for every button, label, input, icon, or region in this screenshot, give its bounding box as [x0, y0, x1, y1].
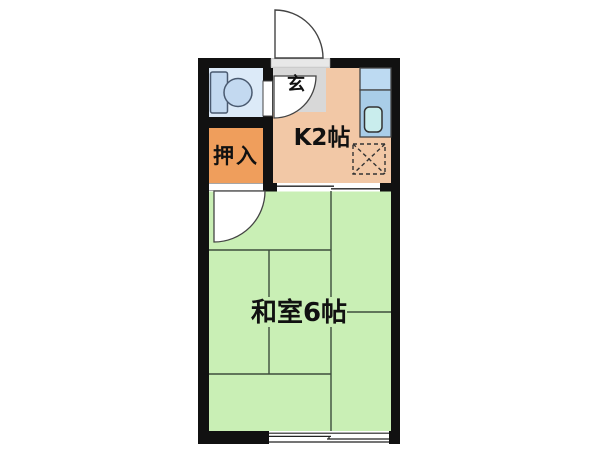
entrance-label: 玄 [287, 73, 305, 95]
wall-bottom-right [389, 431, 400, 444]
closet-label: 押入 [213, 144, 259, 168]
wall-left [198, 58, 209, 444]
kitchen-sink-icon [365, 107, 383, 132]
toilet-door-leaf [263, 81, 273, 116]
wall-stub-right [380, 183, 391, 192]
kitchen-label: K2帖 [294, 125, 351, 151]
floor-plan: 玄 K2帖 押入 和室6帖 [0, 0, 600, 450]
sliding-door [277, 183, 380, 192]
window [269, 432, 389, 443]
wall-bottom-left [198, 431, 269, 444]
toilet-bowl [224, 79, 252, 107]
main-room-label: 和室6帖 [251, 297, 347, 328]
counter-upper [360, 68, 391, 90]
sliding-door-band [277, 183, 380, 192]
floor-plan-drawing: 玄 K2帖 押入 和室6帖 [0, 0, 600, 450]
wall-top-right [330, 58, 400, 68]
wall-stub-left [263, 183, 277, 192]
wall-right [391, 58, 400, 444]
wall-toilet-closet [209, 117, 263, 128]
entrance-threshold [271, 59, 330, 67]
kitchen-counter [360, 68, 391, 137]
